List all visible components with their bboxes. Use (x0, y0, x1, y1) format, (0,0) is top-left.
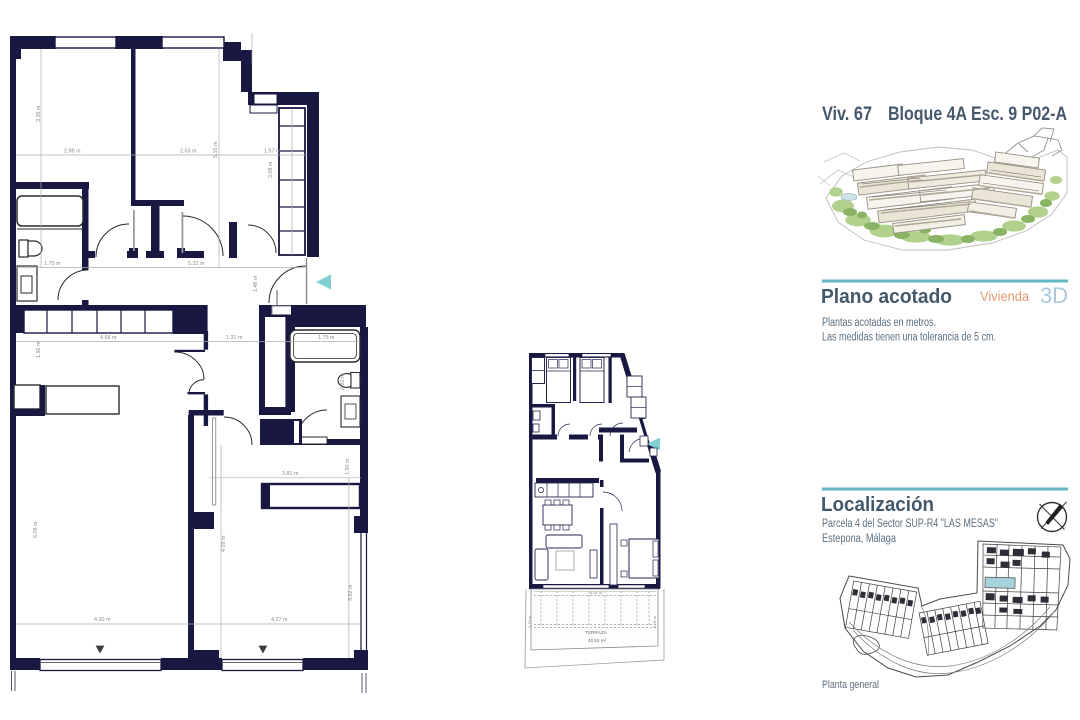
svg-text:4.09 m: 4.09 m (221, 535, 227, 552)
svg-text:Estepona, Málaga: Estepona, Málaga (822, 533, 896, 545)
svg-text:Viv. 67: Viv. 67 (822, 104, 872, 125)
svg-text:Las medidas tienen una toleran: Las medidas tienen una tolerancia de 5 c… (822, 332, 996, 344)
svg-text:Plantas acotadas en metros.: Plantas acotadas en metros. (822, 317, 936, 329)
svg-text:1.31 m: 1.31 m (226, 335, 243, 341)
svg-text:1.75 m: 1.75 m (318, 335, 335, 341)
svg-text:TERRAZA: TERRAZA (585, 630, 607, 635)
svg-text:2.98 m: 2.98 m (64, 149, 81, 155)
svg-text:4.27 m: 4.27 m (271, 617, 288, 623)
svg-text:6.08 m: 6.08 m (33, 521, 39, 538)
svg-text:Localización: Localización (821, 493, 934, 516)
svg-text:5.33 m: 5.33 m (188, 261, 205, 267)
svg-text:2.53 m: 2.53 m (180, 149, 197, 155)
svg-text:Parcela 4 del Sector SUP-R4 "L: Parcela 4 del Sector SUP-R4 "LAS MESAS" (822, 518, 998, 530)
svg-text:1.90 m: 1.90 m (36, 341, 42, 358)
svg-text:3D: 3D (1040, 283, 1068, 308)
svg-text:4.68 m: 4.68 m (100, 335, 117, 341)
svg-text:42,53 m²: 42,53 m² (588, 638, 607, 643)
svg-text:Vivienda: Vivienda (980, 289, 1029, 304)
svg-text:2.60 m: 2.60 m (340, 373, 346, 390)
svg-text:4.30 m: 4.30 m (94, 617, 111, 623)
svg-text:4,76 m: 4,76 m (527, 615, 532, 628)
svg-text:1.46 m: 1.46 m (253, 275, 259, 292)
svg-text:3.08 m: 3.08 m (268, 161, 274, 178)
svg-text:3.36 m: 3.36 m (36, 105, 42, 122)
svg-text:5.10 m: 5.10 m (213, 141, 219, 158)
svg-text:1.70 m: 1.70 m (44, 261, 61, 267)
svg-text:Planta general: Planta general (822, 679, 879, 691)
svg-text:5,06 m: 5,06 m (652, 615, 657, 628)
svg-text:Bloque 4A Esc. 9 P02-A: Bloque 4A Esc. 9 P02-A (888, 104, 1067, 125)
svg-text:6,92 m: 6,92 m (590, 590, 603, 595)
svg-text:1.57 m: 1.57 m (264, 149, 281, 155)
svg-text:3.81 m: 3.81 m (282, 471, 299, 477)
svg-text:3.62 m: 3.62 m (348, 584, 354, 601)
svg-text:1.50 m: 1.50 m (345, 458, 351, 475)
svg-text:Plano acotado: Plano acotado (821, 285, 952, 308)
